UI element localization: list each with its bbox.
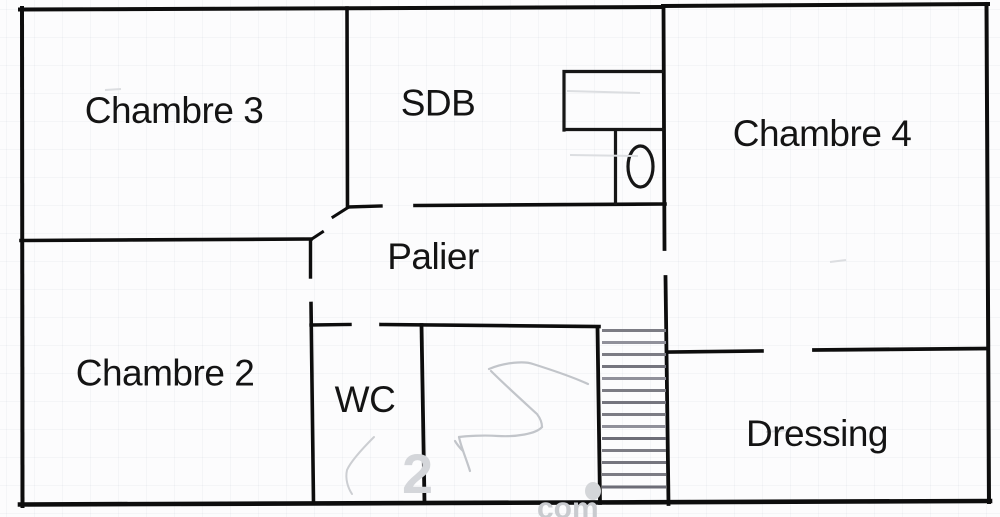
svg-text:WC: WC <box>335 379 396 420</box>
svg-text:Chambre 3: Chambre 3 <box>85 90 264 131</box>
svg-text:Chambre 4: Chambre 4 <box>733 113 912 154</box>
svg-text:SDB: SDB <box>401 83 476 124</box>
svg-text:Palier: Palier <box>387 236 479 277</box>
svg-text:com: com <box>537 492 599 517</box>
svg-text:Dressing: Dressing <box>746 413 888 454</box>
svg-text:Chambre 2: Chambre 2 <box>76 353 255 394</box>
svg-text:2: 2 <box>402 442 433 505</box>
